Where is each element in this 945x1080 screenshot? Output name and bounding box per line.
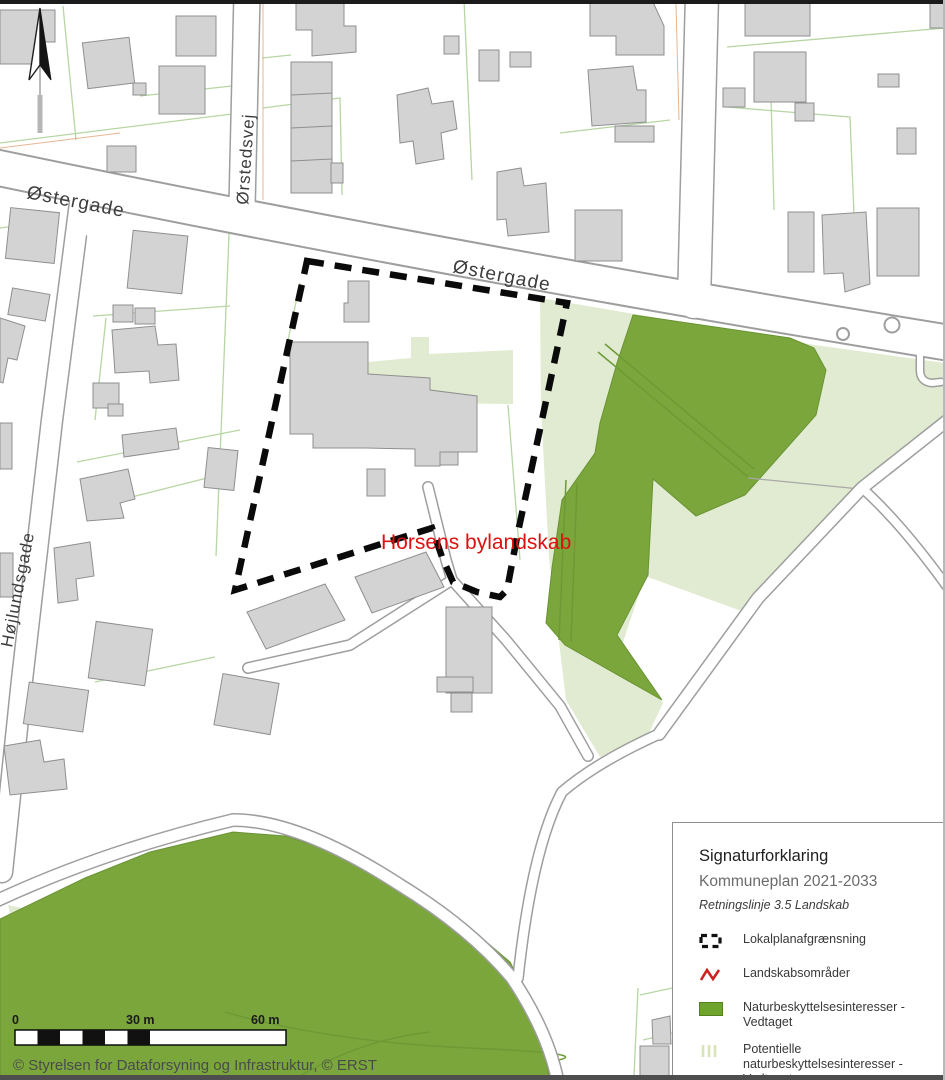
green-area-icon	[699, 1000, 723, 1022]
legend-item-label: naturbeskyttelsesinteresser -	[743, 1057, 903, 1072]
red-zigzag-icon	[699, 966, 723, 988]
legend-item-label: Vedtaget	[743, 1015, 905, 1030]
legend-item-label: Potentielle	[743, 1042, 903, 1057]
legend-title: Signaturforklaring	[699, 847, 930, 866]
legend-guideline: Retningslinje 3.5 Landskab	[699, 898, 930, 912]
attribution-text: © Styrelsen for Dataforsyning og Infrast…	[13, 1057, 377, 1074]
legend-panel: Signaturforklaring Kommuneplan 2021-2033…	[672, 822, 945, 1076]
map-viewer-page: Østergade Østergade Ørstedsvej Højlundsg…	[0, 0, 945, 1080]
legend-item-landskab: Landskabsområder	[699, 966, 930, 988]
top-frame-bar	[0, 0, 945, 4]
legend-item-lokalplan: Lokalplanafgrænsning	[699, 932, 930, 954]
scale-mid-label: 30 m	[126, 1013, 155, 1027]
hatch-area-icon	[699, 1042, 723, 1064]
bottom-frame-bar	[0, 1075, 945, 1080]
legend-subtitle: Kommuneplan 2021-2033	[699, 873, 930, 891]
legend-item-label: Naturbeskyttelsesinteresser -	[743, 1000, 905, 1015]
scale-end-label: 60 m	[251, 1013, 280, 1027]
map-point-circle	[885, 318, 900, 333]
scale-zero-label: 0	[12, 1013, 19, 1027]
legend-item-naturbeskyttelse: Naturbeskyttelsesinteresser - Vedtaget	[699, 1000, 930, 1030]
site-label-horsens-bylandskab: Horsens bylandskab	[381, 531, 571, 554]
legend-item-label: Lokalplanafgrænsning	[743, 932, 866, 947]
legend-item-label: Landskabsområder	[743, 966, 850, 981]
dashed-boundary-icon	[699, 932, 723, 954]
map-point-circle	[837, 328, 849, 340]
